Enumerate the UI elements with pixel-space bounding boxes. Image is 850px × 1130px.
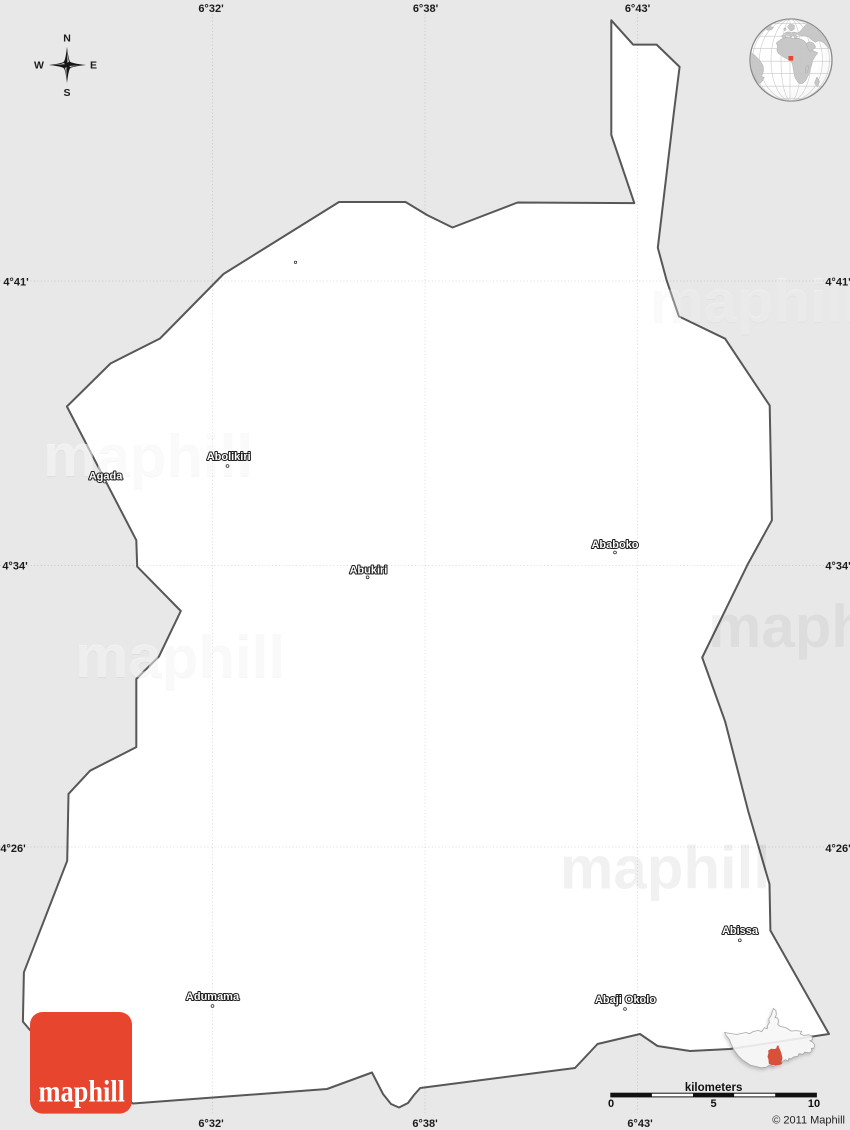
svg-text:maphill: maphill — [560, 835, 770, 902]
svg-text:6°43': 6°43' — [625, 3, 651, 15]
svg-text:6°32': 6°32' — [198, 3, 224, 15]
svg-text:6°38': 6°38' — [412, 1118, 438, 1130]
svg-text:10: 10 — [808, 1098, 820, 1110]
svg-text:Abolikiri: Abolikiri — [207, 451, 251, 463]
svg-text:W: W — [34, 60, 44, 72]
svg-text:4°34': 4°34' — [825, 561, 850, 573]
svg-text:Ababoko: Ababoko — [591, 539, 638, 551]
svg-text:E: E — [90, 60, 97, 72]
svg-text:maphill: maphill — [75, 623, 285, 690]
svg-text:Adumama: Adumama — [186, 991, 240, 1003]
svg-text:6°38': 6°38' — [413, 3, 439, 15]
svg-text:Abukiri: Abukiri — [349, 565, 387, 577]
svg-text:S: S — [63, 87, 70, 99]
svg-text:Abaji Okolo: Abaji Okolo — [595, 994, 656, 1006]
svg-text:4°26': 4°26' — [825, 843, 850, 855]
svg-text:4°41': 4°41' — [825, 277, 850, 289]
svg-text:N: N — [63, 32, 71, 44]
svg-text:6°32': 6°32' — [198, 1118, 224, 1130]
svg-text:kilometers: kilometers — [685, 1082, 743, 1094]
svg-text:4°34': 4°34' — [2, 561, 28, 573]
svg-text:4°41': 4°41' — [3, 277, 29, 289]
svg-text:maphill: maphill — [39, 1074, 126, 1109]
svg-text:maphill: maphill — [708, 593, 850, 660]
svg-text:4°26': 4°26' — [0, 843, 26, 855]
svg-text:Abissa: Abissa — [722, 925, 759, 937]
svg-text:6°43': 6°43' — [627, 1118, 653, 1130]
svg-text:5: 5 — [711, 1098, 717, 1110]
svg-text:0: 0 — [608, 1098, 614, 1110]
svg-text:maphill: maphill — [650, 268, 850, 335]
svg-text:© 2011 Maphill: © 2011 Maphill — [772, 1115, 845, 1127]
